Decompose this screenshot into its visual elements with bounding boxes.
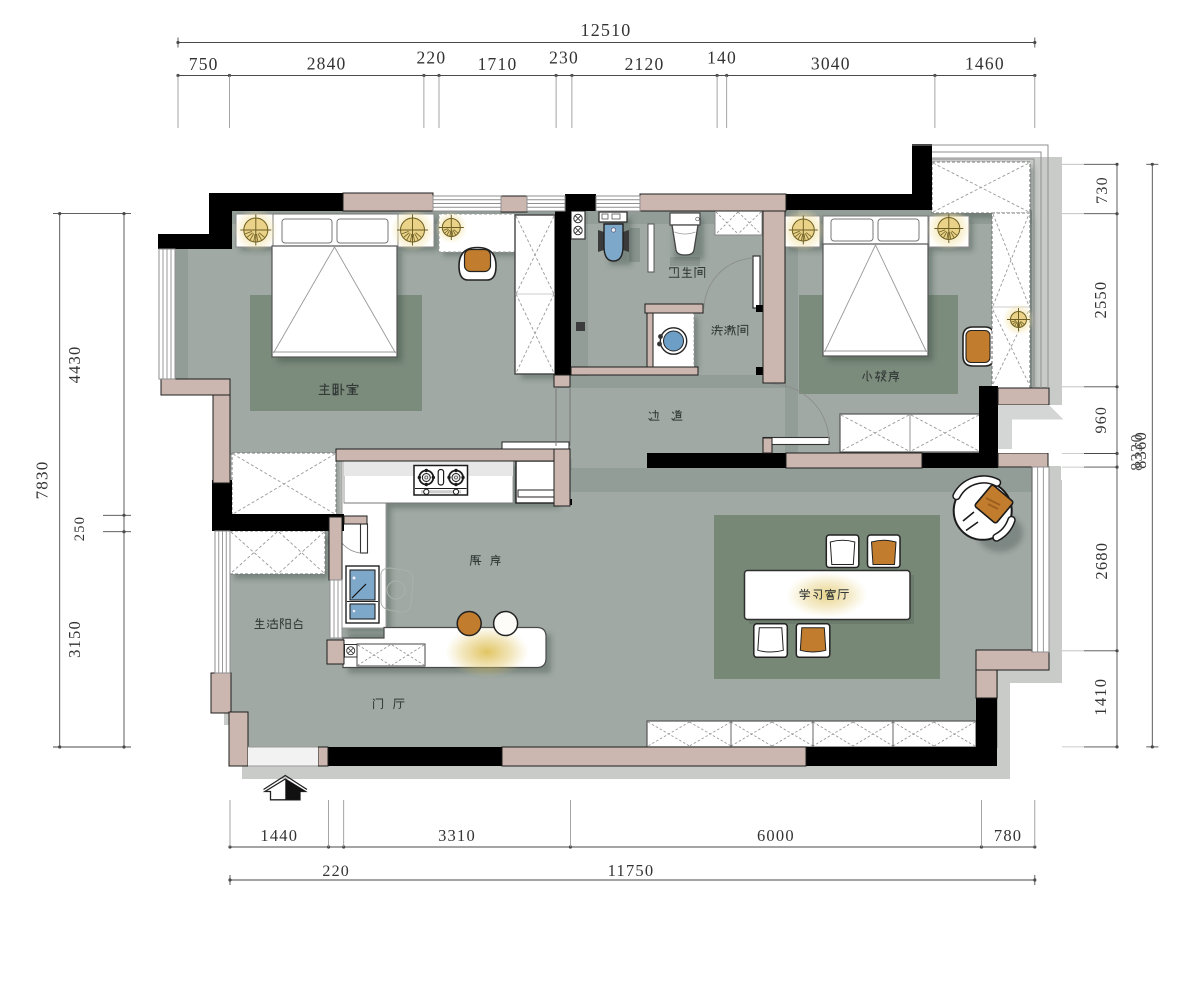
svg-text:1460: 1460 <box>965 54 1005 74</box>
svg-text:140: 140 <box>707 48 737 68</box>
svg-text:960: 960 <box>1093 406 1110 434</box>
svg-text:2680: 2680 <box>1092 542 1111 580</box>
svg-text:230: 230 <box>549 48 579 68</box>
svg-text:8330: 8330 <box>1127 433 1146 471</box>
svg-text:220: 220 <box>416 48 446 68</box>
svg-text:1440: 1440 <box>260 826 298 845</box>
svg-text:12510: 12510 <box>581 20 632 40</box>
svg-text:6000: 6000 <box>757 826 795 845</box>
svg-text:730: 730 <box>1094 176 1111 204</box>
svg-text:7830: 7830 <box>33 461 52 500</box>
svg-text:1710: 1710 <box>478 54 518 74</box>
svg-text:11750: 11750 <box>608 861 655 880</box>
svg-text:4430: 4430 <box>65 346 84 384</box>
svg-text:220: 220 <box>322 863 350 880</box>
svg-text:3150: 3150 <box>65 620 84 658</box>
svg-text:3040: 3040 <box>811 54 851 74</box>
svg-text:2550: 2550 <box>1091 281 1110 319</box>
svg-text:750: 750 <box>189 54 219 74</box>
svg-text:2840: 2840 <box>307 54 347 74</box>
svg-text:1410: 1410 <box>1091 678 1110 716</box>
svg-text:250: 250 <box>72 516 88 541</box>
svg-text:780: 780 <box>994 826 1022 845</box>
svg-text:2120: 2120 <box>625 54 665 74</box>
svg-text:3310: 3310 <box>438 826 476 845</box>
